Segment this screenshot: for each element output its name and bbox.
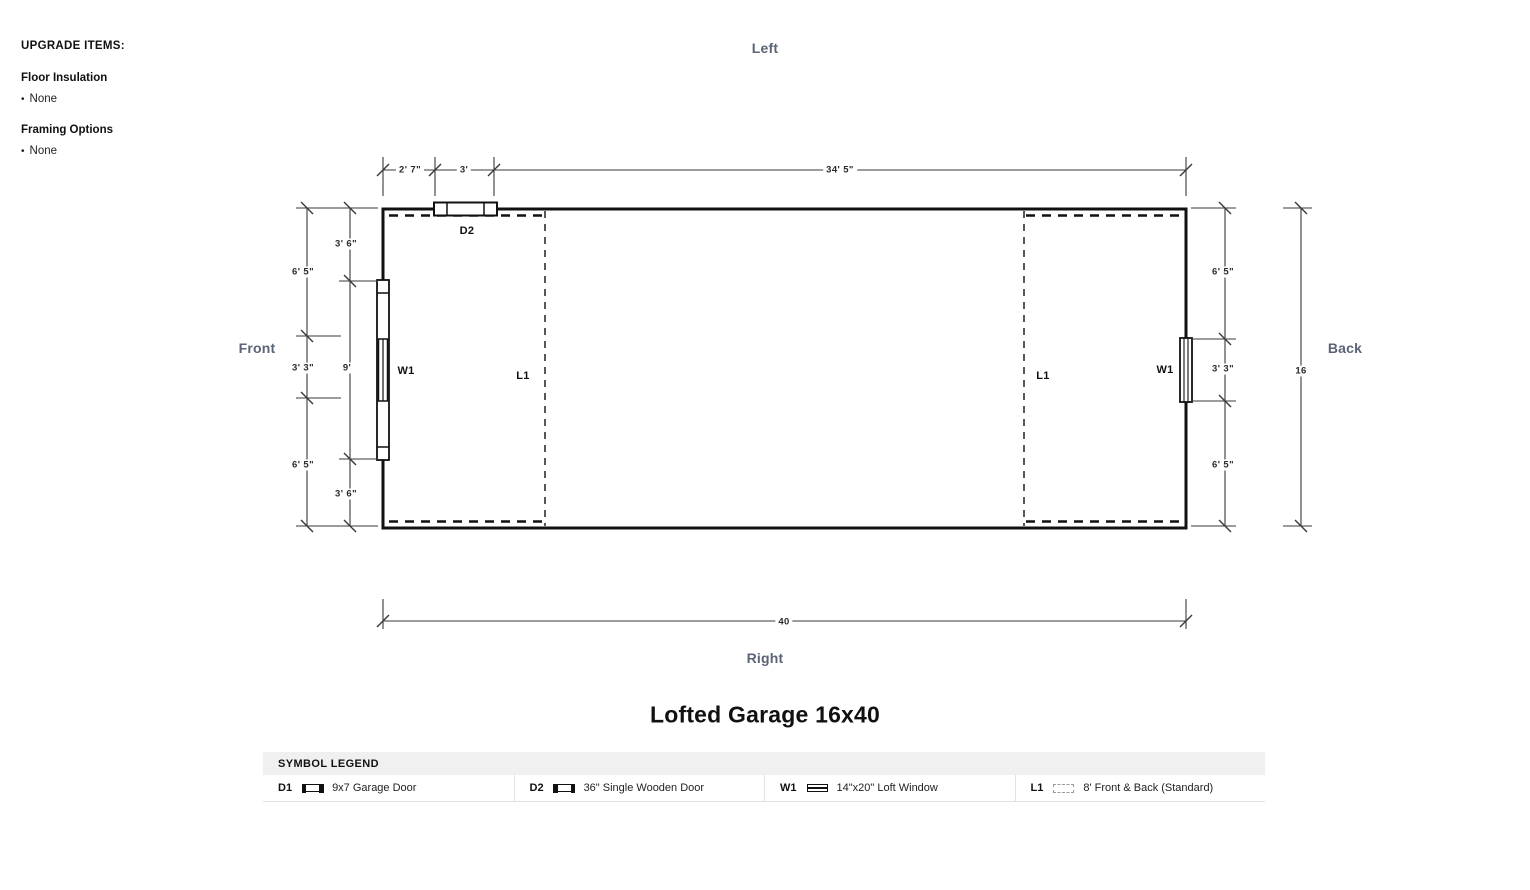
loft-window-icon <box>807 784 828 792</box>
legend-code: D2 <box>530 782 544 794</box>
garage-door-icon <box>302 784 323 792</box>
dim-right-top: 6' 5" <box>1209 267 1237 278</box>
upgrade-section-label: Floor Insulation <box>21 72 281 84</box>
label-loft-front: L1 <box>516 370 529 382</box>
bullet-marker: • <box>21 94 25 105</box>
dim-top-remainder: 34' 5" <box>823 165 857 176</box>
upgrade-section-floor-insulation: Floor Insulation •None <box>21 72 281 105</box>
legend-code: L1 <box>1031 782 1044 794</box>
symbol-legend-header: SYMBOL LEGEND <box>263 752 1265 775</box>
front-door-window-symbol <box>377 280 389 460</box>
upgrade-value-text: None <box>30 93 58 105</box>
symbol-legend-row: D1 9x7 Garage Door D2 36" Single Wooden … <box>263 775 1265 801</box>
upgrade-items-title: UPGRADE ITEMS: <box>21 40 281 52</box>
dim-left-outer-top: 6' 5" <box>289 267 317 278</box>
upgrade-section-value: •None <box>21 93 281 105</box>
legend-code: D1 <box>278 782 292 794</box>
door-d2-symbol <box>434 203 497 216</box>
legend-description: 36" Single Wooden Door <box>584 782 705 794</box>
legend-item-w1: W1 14"x20" Loft Window <box>764 775 1015 801</box>
legend-description: 9x7 Garage Door <box>332 782 416 794</box>
upgrade-section-value: •None <box>21 145 281 157</box>
upgrade-section-framing-options: Framing Options •None <box>21 124 281 157</box>
dim-left-inner-mid: 9' <box>340 363 354 374</box>
dim-overall-depth: 16 <box>1292 366 1309 377</box>
dim-left-outer-bottom: 6' 5" <box>289 460 317 471</box>
orientation-label-back: Back <box>1328 340 1362 356</box>
legend-item-l1: L1 8' Front & Back (Standard) <box>1015 775 1266 801</box>
dim-overall-width: 40 <box>775 617 792 628</box>
legend-description: 8' Front & Back (Standard) <box>1083 782 1213 794</box>
page-title: Lofted Garage 16x40 <box>650 702 880 729</box>
back-window-symbol <box>1180 338 1192 402</box>
plan-outline <box>383 209 1186 528</box>
dim-left-outer-mid: 3' 3" <box>289 363 317 374</box>
top-dimension-line <box>377 157 1192 196</box>
label-window-front: W1 <box>397 365 414 377</box>
bullet-marker: • <box>21 146 25 157</box>
label-loft-back: L1 <box>1036 370 1049 382</box>
orientation-label-left: Left <box>752 40 778 56</box>
upgrade-items-panel: UPGRADE ITEMS: Floor Insulation •None Fr… <box>21 40 281 176</box>
upgrade-value-text: None <box>30 145 58 157</box>
dim-right-mid: 3' 3" <box>1209 364 1237 375</box>
symbol-legend: SYMBOL LEGEND D1 9x7 Garage Door D2 36" … <box>263 752 1265 802</box>
dim-top-door: 3' <box>457 165 471 176</box>
floor-plan-page: UPGRADE ITEMS: Floor Insulation •None Fr… <box>0 0 1530 890</box>
legend-item-d2: D2 36" Single Wooden Door <box>514 775 765 801</box>
legend-description: 14"x20" Loft Window <box>837 782 938 794</box>
label-window-back: W1 <box>1156 364 1173 376</box>
dim-top-offset: 2' 7" <box>396 165 424 176</box>
legend-item-d1: D1 9x7 Garage Door <box>263 775 514 801</box>
single-door-icon <box>554 784 575 792</box>
orientation-label-front: Front <box>239 340 276 356</box>
dim-left-inner-top: 3' 6" <box>332 239 360 250</box>
dim-right-bottom: 6' 5" <box>1209 460 1237 471</box>
label-door-d2: D2 <box>460 225 475 237</box>
loft-area-icon <box>1053 784 1074 793</box>
upgrade-section-label: Framing Options <box>21 124 281 136</box>
legend-code: W1 <box>780 782 797 794</box>
orientation-label-right: Right <box>747 650 784 666</box>
dim-left-inner-bottom: 3' 6" <box>332 489 360 500</box>
